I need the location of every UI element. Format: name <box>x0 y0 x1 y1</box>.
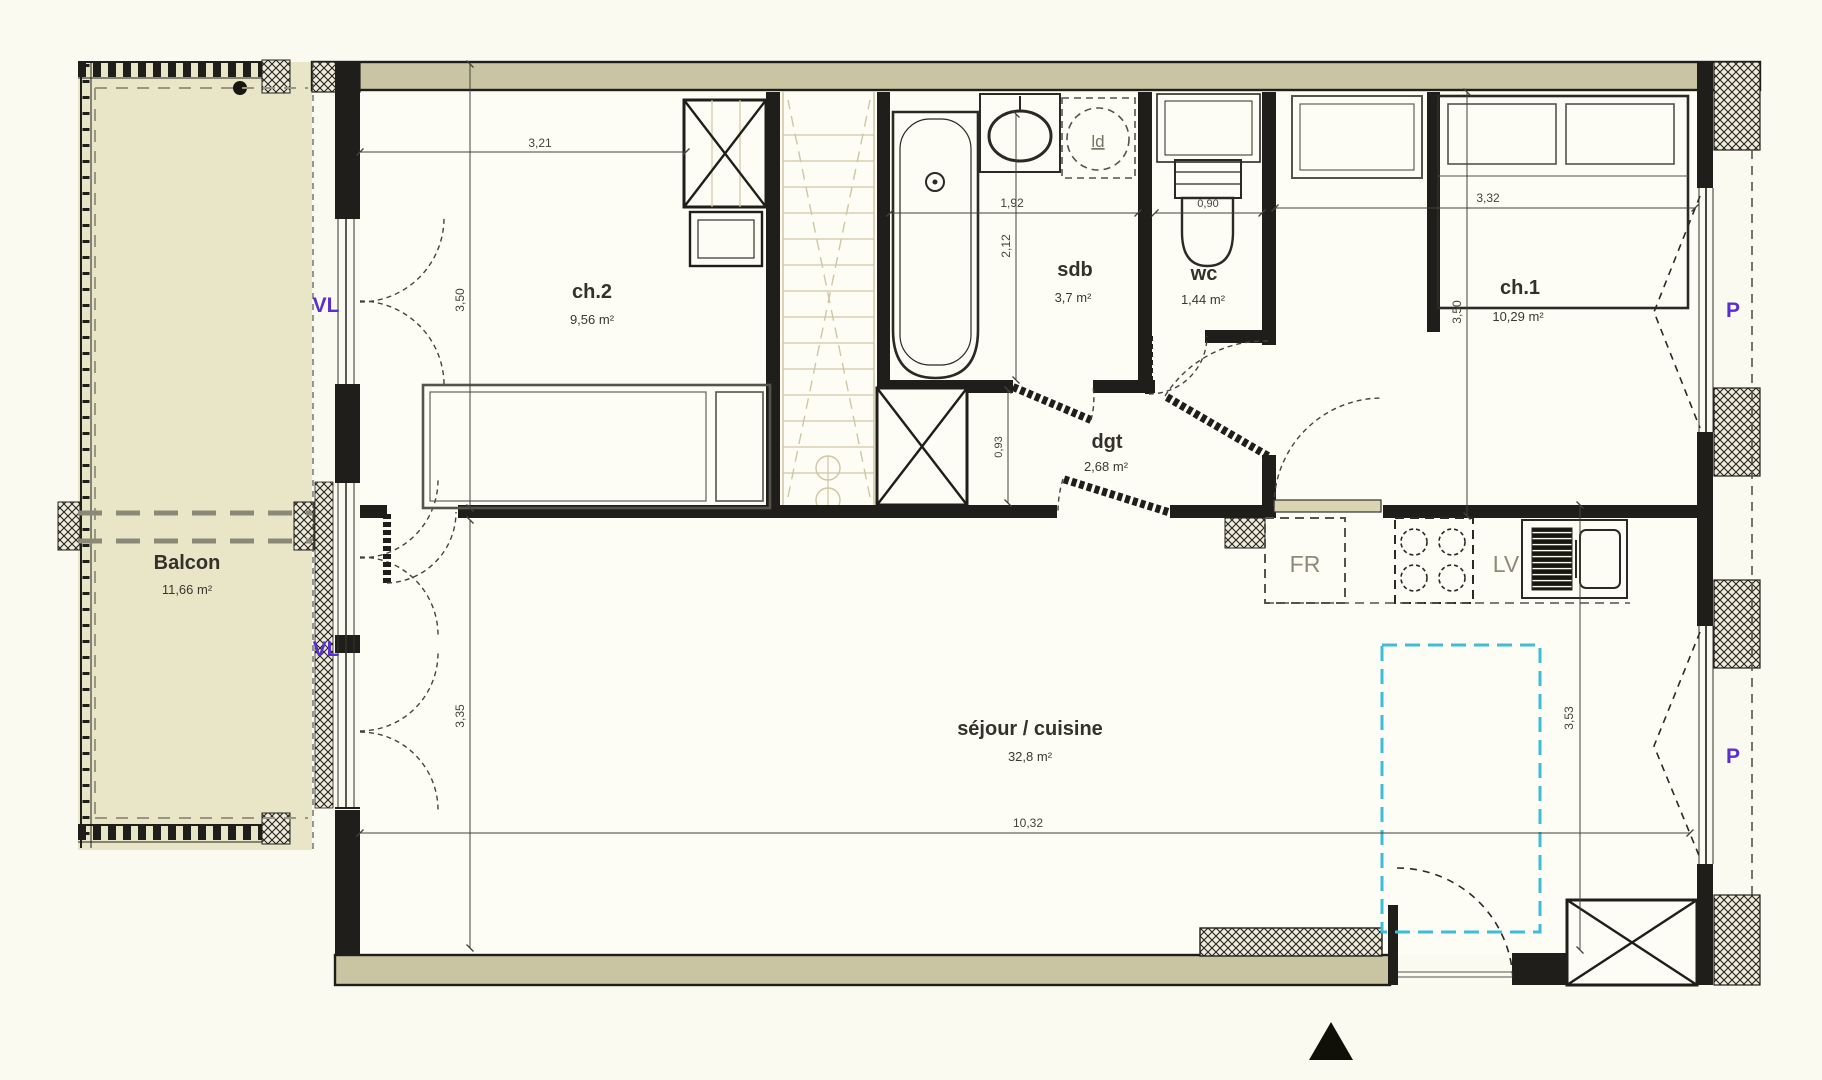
balcony-area: 11,66 m² <box>162 582 213 597</box>
floor-plan-page: Balcon 11,66 m² <box>0 0 1822 1080</box>
dim-wc-width: 0,90 <box>1197 198 1218 210</box>
dgt-label: dgt <box>1091 431 1122 453</box>
dim-sejour-right-height: 3,53 <box>1562 706 1576 730</box>
sdb-area: 3,7 m² <box>1055 290 1093 305</box>
dim-sdb-width: 1,92 <box>1000 196 1024 210</box>
washer-label: ld <box>1091 132 1104 151</box>
p1-label: P <box>1726 299 1740 322</box>
dim-sejour-left-height: 3,35 <box>453 704 467 728</box>
entrance-direction-icon <box>1309 1022 1353 1060</box>
dgt-area: 2,68 m² <box>1084 459 1129 474</box>
fridge-label: FR <box>1290 551 1321 577</box>
ch1-label: ch.1 <box>1500 277 1540 299</box>
vl1-label: VL <box>313 294 340 317</box>
balcony: Balcon 11,66 m² <box>58 60 314 850</box>
cupboard <box>690 212 762 266</box>
shaft-top <box>684 100 766 207</box>
dim-sejour-width: 10,32 <box>1013 816 1043 830</box>
dim-ch2-width: 3,21 <box>528 136 552 150</box>
balcony-label: Balcon <box>154 552 221 574</box>
wc-area: 1,44 m² <box>1181 292 1226 307</box>
shaft-middle <box>877 388 967 505</box>
floor-plan-drawing: Balcon 11,66 m² <box>0 0 1822 1080</box>
dim-sdb-height: 2,12 <box>999 234 1013 258</box>
ch2-label: ch.2 <box>572 281 612 303</box>
dim-dgt-height: 0,93 <box>993 436 1005 457</box>
p2-label: P <box>1726 745 1740 768</box>
dim-ch2-height: 3,50 <box>453 288 467 312</box>
shaft-bottom-right <box>1567 900 1697 985</box>
sejour-area: 32,8 m² <box>1008 749 1053 764</box>
sejour-label: séjour / cuisine <box>957 718 1103 740</box>
ch1-area: 10,29 m² <box>1492 309 1544 324</box>
dim-ch1-width: 3,32 <box>1476 191 1500 205</box>
ch2-area: 9,56 m² <box>570 312 615 327</box>
vl2-label: VL <box>313 638 340 661</box>
dishwasher-label: LV <box>1493 551 1520 577</box>
sdb-label: sdb <box>1057 259 1093 281</box>
balcony-floor <box>78 62 312 850</box>
wc-label: wc <box>1190 263 1218 285</box>
dim-ch1-height: 3,50 <box>1450 300 1464 324</box>
